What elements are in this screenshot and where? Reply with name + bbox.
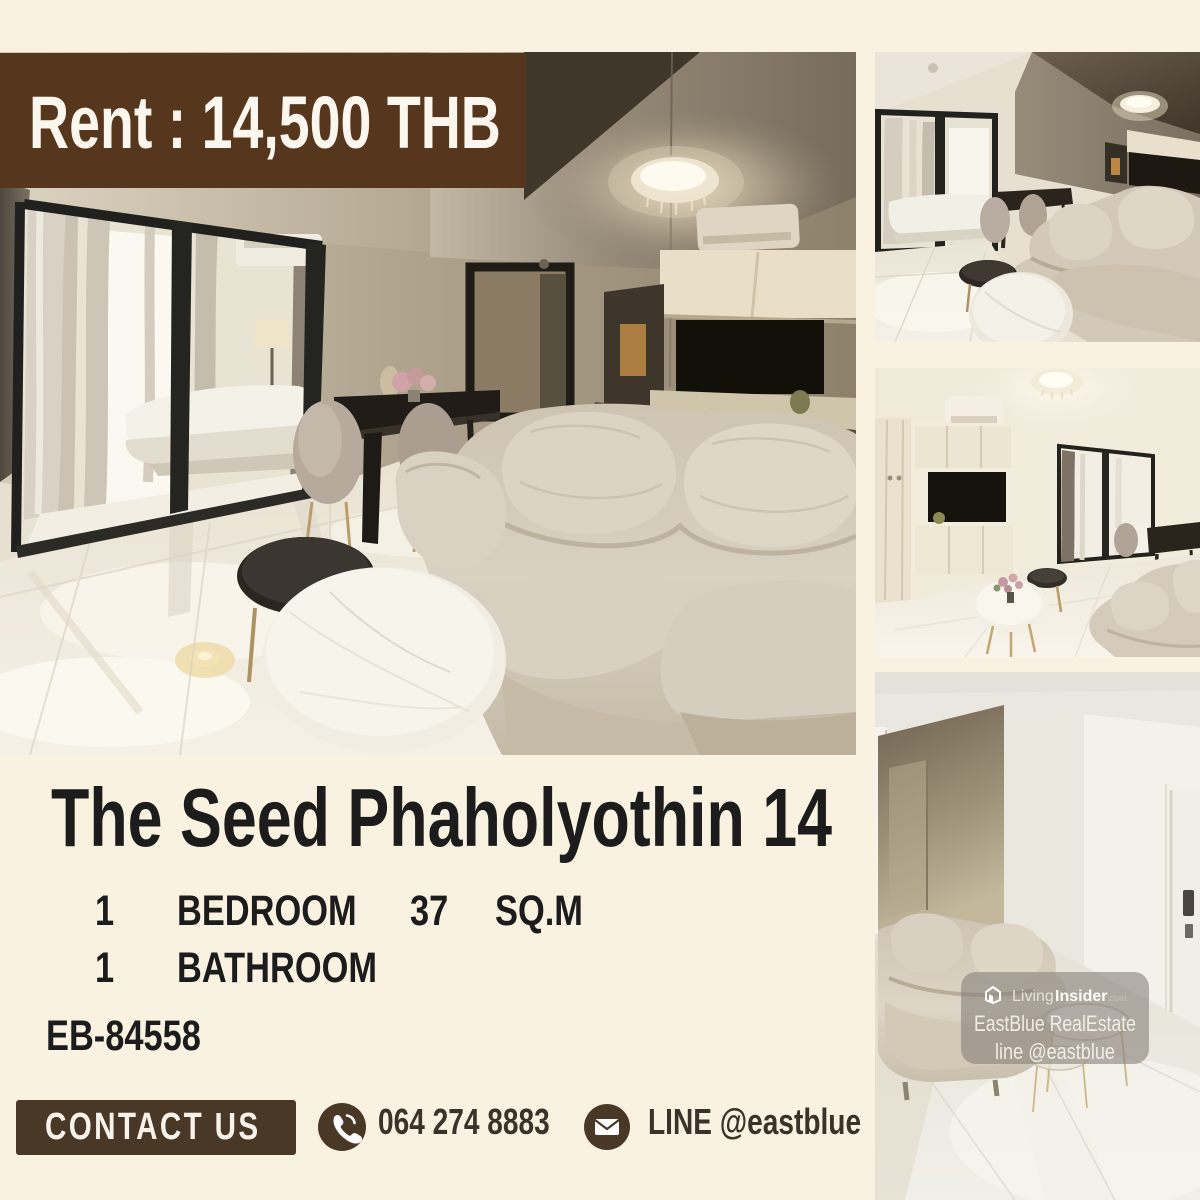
svg-text:.com: .com [1107, 993, 1127, 1003]
svg-text:Insider: Insider [1055, 988, 1107, 1005]
svg-text:Living: Living [1012, 988, 1054, 1005]
svg-text:EastBlue RealEstate: EastBlue RealEstate [974, 1011, 1136, 1036]
svg-text:line @eastblue: line @eastblue [995, 1039, 1115, 1064]
